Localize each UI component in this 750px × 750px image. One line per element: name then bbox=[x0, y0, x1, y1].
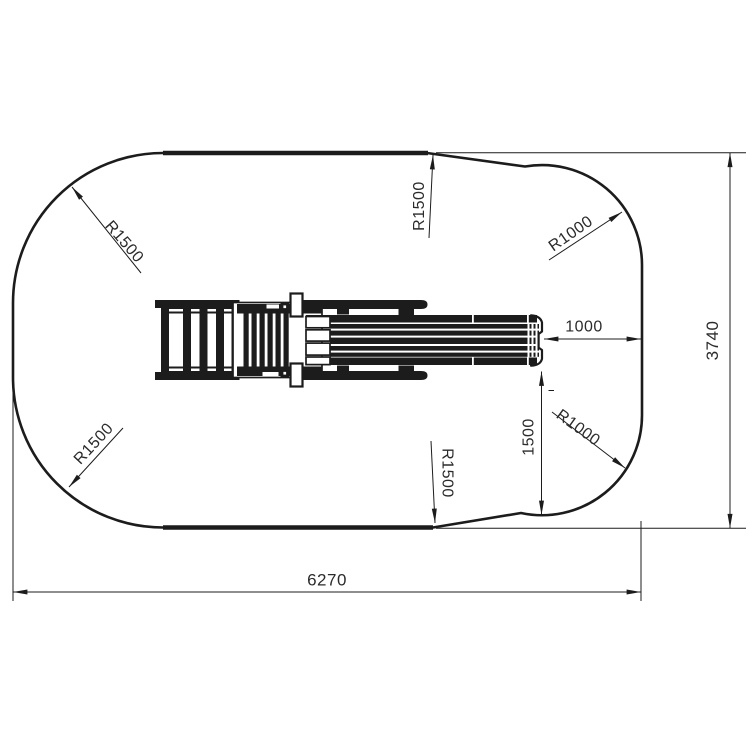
post-small-center bbox=[283, 305, 286, 308]
playground-safety-zone-plan: 3740 6270 1000 1500 R1500 R1500 bbox=[0, 0, 750, 750]
radius-label-bottom-right: R1000 bbox=[553, 407, 603, 450]
wall-joint bbox=[472, 315, 474, 323]
chute-wall-top bbox=[306, 315, 537, 323]
radius-top-right: R1000 bbox=[546, 212, 622, 260]
chute-bed-line bbox=[330, 353, 539, 357]
post-small-center bbox=[283, 372, 286, 375]
platform-barrier-bottom-notch bbox=[263, 372, 279, 376]
radius-bottom-mid: R1500 bbox=[431, 441, 456, 523]
rail-bracket bbox=[399, 309, 415, 315]
slide-chute bbox=[302, 300, 554, 391]
radius-top-mid: R1500 bbox=[411, 155, 433, 238]
access-ladder bbox=[155, 300, 240, 380]
deck-board bbox=[252, 314, 257, 368]
wall-joint bbox=[472, 358, 474, 366]
rail-bracket bbox=[399, 366, 415, 372]
dim-overall-width: 6270 bbox=[13, 382, 641, 601]
chute-bed-lines bbox=[330, 324, 539, 357]
dim-side-clearance: 1500 bbox=[521, 372, 542, 516]
ladder-stub-bottom bbox=[155, 372, 162, 380]
deck-board bbox=[268, 314, 273, 368]
rail-bracket bbox=[337, 309, 349, 315]
ladder-end-cap bbox=[161, 300, 169, 380]
deck-board bbox=[244, 314, 249, 368]
radius-bottom-left: R1500 bbox=[69, 420, 123, 487]
chute-bed-line bbox=[330, 324, 539, 329]
leader-line bbox=[429, 155, 433, 238]
platform-barrier-top-notch bbox=[267, 305, 280, 309]
radius-top-left: R1500 bbox=[72, 187, 147, 273]
rail-bracket bbox=[337, 366, 349, 372]
ladder-rung bbox=[216, 300, 224, 380]
dim-end-clearance: 1000 bbox=[544, 319, 641, 340]
end-cap-stripe bbox=[528, 323, 530, 358]
chute-bed-line bbox=[330, 346, 539, 351]
wall-joint bbox=[527, 358, 529, 366]
entry-step bbox=[306, 330, 330, 341]
chute-bed-line bbox=[330, 331, 539, 336]
slide-entry-steps bbox=[306, 317, 330, 365]
entry-step bbox=[306, 343, 330, 355]
drawing-canvas: 3740 6270 1000 1500 R1500 R1500 bbox=[0, 0, 750, 750]
post-large-top bbox=[291, 294, 303, 317]
leader-line bbox=[431, 441, 435, 523]
radius-label-top-mid: R1500 bbox=[411, 181, 428, 231]
radius-label-bottom-left: R1500 bbox=[71, 420, 117, 468]
entry-step bbox=[306, 317, 330, 328]
dim-label-3740: 3740 bbox=[703, 321, 722, 361]
deck-board bbox=[260, 314, 265, 368]
wall-joint bbox=[527, 315, 529, 323]
chute-bed-line bbox=[330, 338, 539, 344]
post-large-bottom bbox=[291, 364, 303, 387]
dim-label-6270: 6270 bbox=[307, 571, 347, 590]
slide-side-rail-top bbox=[302, 300, 428, 309]
ladder-rung bbox=[200, 300, 208, 380]
end-cap-stripe bbox=[532, 323, 534, 358]
deck-board bbox=[284, 314, 289, 368]
slide-side-rail-bottom bbox=[302, 371, 428, 380]
entry-step bbox=[306, 357, 330, 365]
ladder-stub-top bbox=[155, 300, 162, 308]
radius-label-top-left: R1500 bbox=[101, 218, 146, 267]
radius-bottom-right: R1000 bbox=[552, 407, 625, 468]
radius-label-bottom-mid: R1500 bbox=[439, 448, 456, 498]
ladder-rung bbox=[183, 300, 191, 380]
equipment-plan bbox=[155, 294, 554, 391]
dim-label-1000: 1000 bbox=[565, 319, 603, 336]
chute-wall-bottom bbox=[306, 358, 537, 366]
dim-label-1500: 1500 bbox=[521, 418, 538, 456]
end-cap-stripe bbox=[536, 323, 538, 358]
deck-board bbox=[276, 314, 281, 368]
